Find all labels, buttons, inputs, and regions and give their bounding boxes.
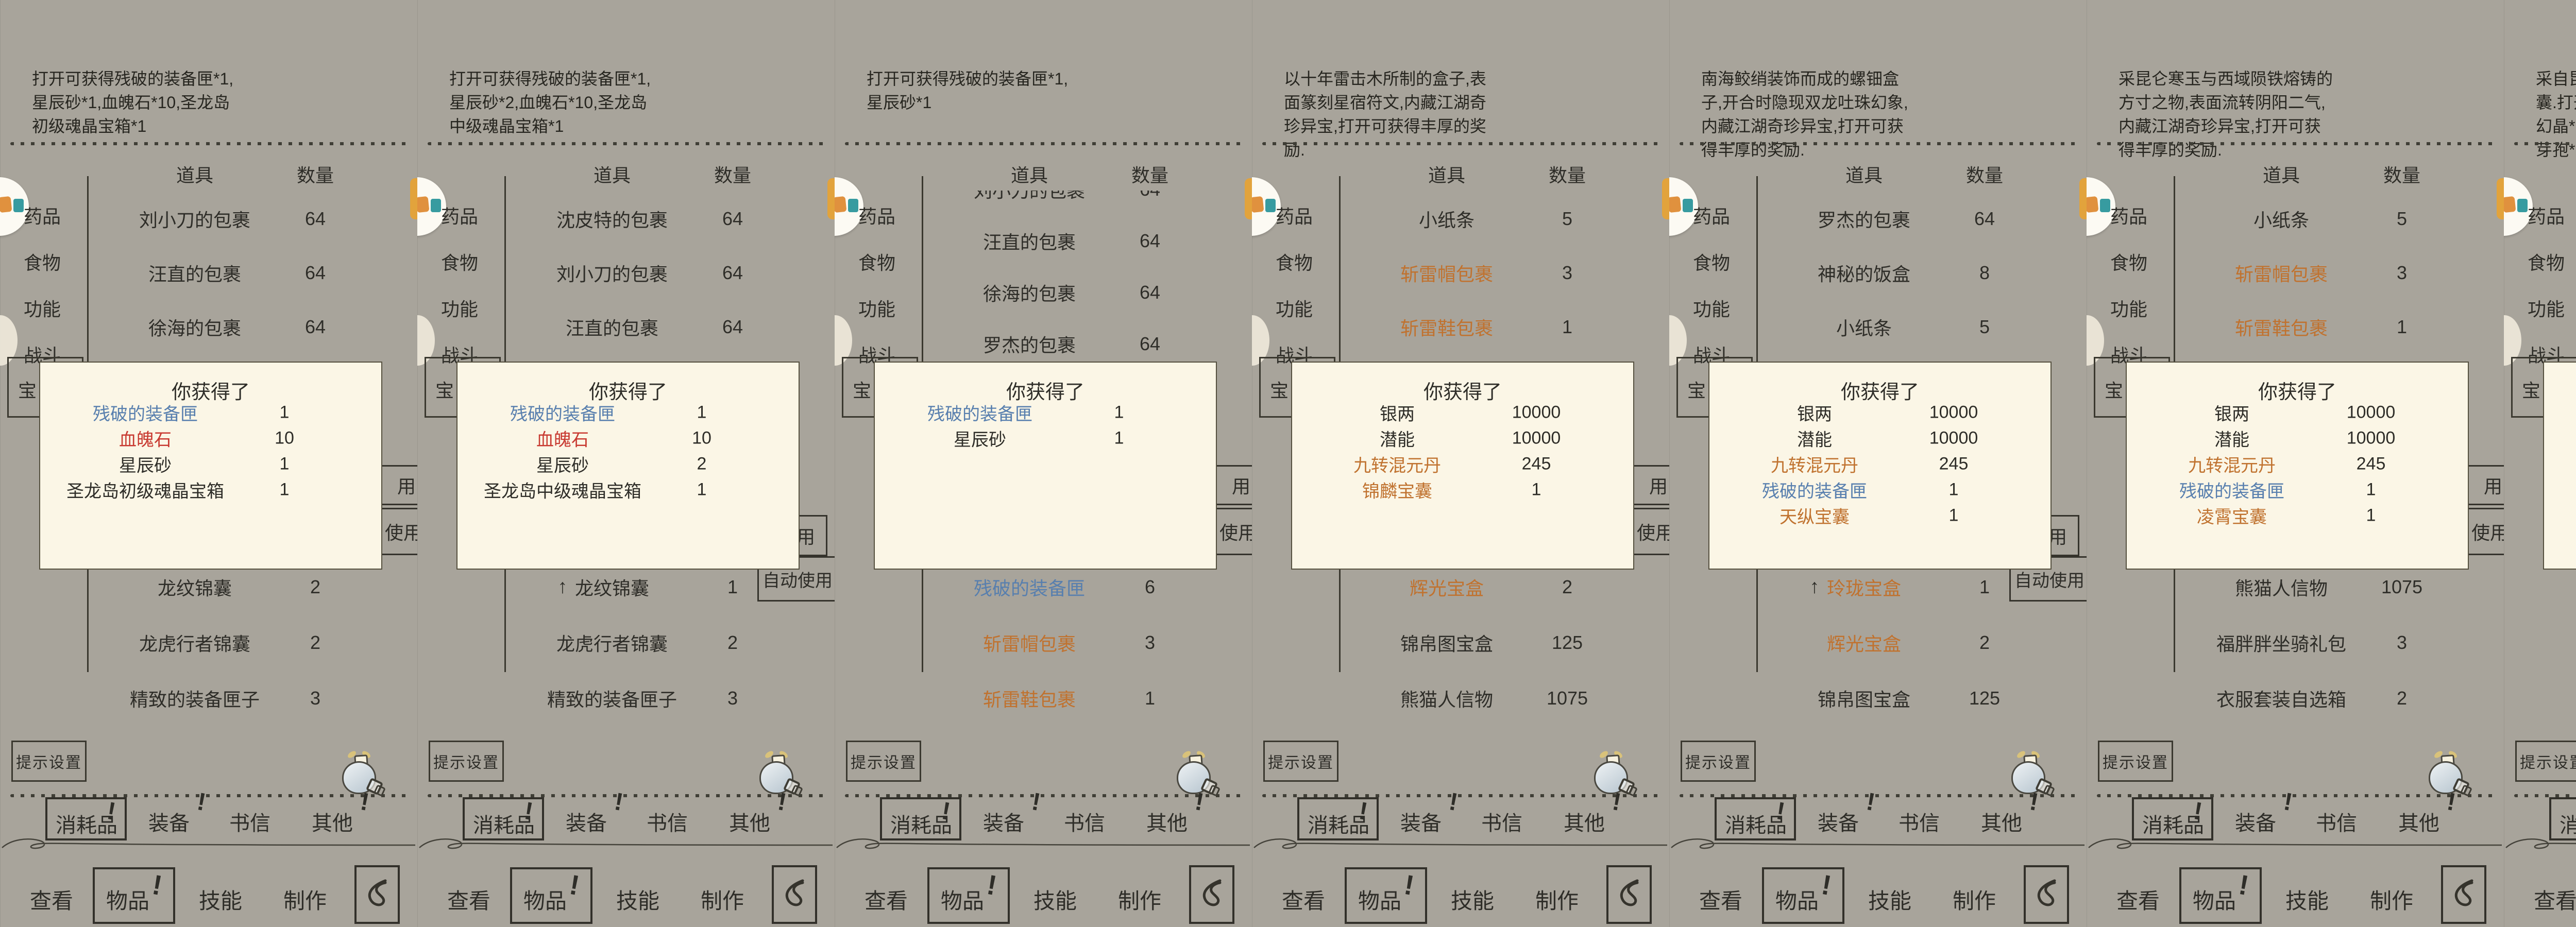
- auto-use-button-cutoff[interactable]: 使用: [1631, 508, 1669, 555]
- loot-count: 1: [280, 454, 290, 474]
- table-row[interactable]: 锦帛图宝盒125: [1757, 679, 2087, 718]
- nav-craft[interactable]: 制作: [1118, 884, 1161, 915]
- table-row[interactable]: 小纸条5: [1757, 307, 2087, 347]
- badge-teal-icon: [1265, 199, 1276, 212]
- column-header-count: 数量: [2383, 161, 2420, 187]
- item-count: 2: [310, 576, 320, 598]
- table-row[interactable]: 斩雷鞋包裹1: [2174, 307, 2504, 347]
- table-row[interactable]: 福胖胖坐骑礼包3: [2174, 623, 2504, 662]
- popup-loot-row: 圣龙岛初级魂晶宝箱1: [40, 477, 381, 503]
- column-header-item: 道具: [1845, 161, 1883, 187]
- sidebar-item-function[interactable]: 功能: [24, 295, 61, 321]
- use-button-label: 用: [2484, 472, 2502, 499]
- loot-count: 1: [1949, 480, 1959, 500]
- item-name: 斩雷帽包裹: [983, 629, 1076, 656]
- loot-count: 245: [1522, 454, 1551, 474]
- badge-orange-icon: [1669, 196, 1682, 213]
- item-name: 罗杰的包裹: [983, 331, 1076, 357]
- loot-popup: 你获得了 银两10000潜能10000九转混元丹245锦麟宝囊1: [1291, 362, 1634, 570]
- chest-description: 南海鲛绡装饰而成的螺钿盒子,开合时隐现双龙吐珠幻象,内藏江湖奇珍异宝,打开可获得…: [1701, 67, 1916, 162]
- loot-name: 星辰砂: [954, 426, 1006, 451]
- back-button[interactable]: [1189, 865, 1234, 924]
- loot-count: 1: [1949, 506, 1959, 526]
- auto-use-button-cutoff[interactable]: 使用: [1214, 508, 1252, 555]
- popup-loot-row: 银两10000: [2127, 400, 2468, 425]
- table-row[interactable]: 神秘的饭盒8: [1757, 253, 2087, 293]
- table-row[interactable]: 辉光宝盒2: [1340, 568, 1669, 607]
- tab-letters[interactable]: 书信: [1899, 806, 1940, 836]
- item-count: 5: [1979, 316, 1990, 338]
- nav-items-selected[interactable]: 物品!: [1345, 867, 1427, 924]
- item-name: 精致的装备匣子: [547, 685, 677, 712]
- badge-orange-icon: [2504, 196, 2516, 213]
- auto-use-button-label: 使用: [2471, 518, 2504, 545]
- sidebar-item-function[interactable]: 功能: [2110, 295, 2147, 321]
- popup-loot-row: 血魄石20: [2544, 425, 2576, 451]
- table-row[interactable]: 龙纹锦囊2: [88, 568, 417, 607]
- column-header-item: 道具: [2263, 161, 2300, 187]
- nav-view[interactable]: 查看: [2116, 884, 2160, 915]
- tip-settings-button[interactable]: 提示设置: [1681, 741, 1756, 782]
- table-row[interactable]: 小纸条5: [1340, 199, 1669, 238]
- tab-letters[interactable]: 书信: [647, 806, 688, 836]
- sidebar-item-medicine[interactable]: 药品: [441, 202, 478, 229]
- chest-description: 打开可获得残破的装备匣*1,星辰砂*1: [867, 67, 1081, 114]
- table-row[interactable]: 徐海的包裹64: [88, 307, 417, 347]
- table-row[interactable]: 汪直的包裹64: [88, 253, 417, 293]
- tab-others[interactable]: 其他: [2398, 806, 2439, 836]
- popup-loot-row: 血魄石10: [457, 425, 799, 451]
- item-count: 2: [2397, 688, 2407, 709]
- table-row[interactable]: 辉光宝盒2: [1757, 623, 2087, 662]
- tab-equipment[interactable]: 装备: [1818, 806, 1859, 836]
- loot-name: 星辰砂: [119, 452, 172, 477]
- divider-squiggle: [2087, 834, 2504, 853]
- loot-name: 残破的装备匣: [1762, 477, 1867, 503]
- badge-teal-icon: [13, 199, 24, 212]
- badge-orange-icon: [835, 196, 847, 213]
- loot-popup: 你获得了 残破的装备匣1血魄石10星辰砂2圣龙岛中级魂晶宝箱1: [456, 362, 800, 570]
- table-row[interactable]: 熊猫人信物1075: [1340, 679, 1669, 718]
- popup-loot-row: 九转混元丹245: [1709, 451, 2050, 477]
- item-count: 1: [1562, 316, 1572, 338]
- inventory-screen: 打开可获得残破的装备匣*1,星辰砂*2,血魄石*10,圣龙岛中级魂晶宝箱*1 道…: [417, 0, 835, 927]
- sidebar-item-function[interactable]: 功能: [858, 295, 895, 321]
- item-name: 辉光宝盒: [1410, 574, 1484, 600]
- item-count: 3: [2397, 632, 2407, 654]
- table-row[interactable]: 斩雷鞋包裹1: [1340, 307, 1669, 347]
- nav-skills[interactable]: 技能: [616, 884, 659, 915]
- item-count: 8: [1979, 262, 1990, 284]
- item-count: 1075: [1547, 688, 1588, 709]
- popup-loot-row: 星辰砂3: [2544, 451, 2576, 477]
- tip-settings-button[interactable]: 提示设置: [11, 741, 87, 782]
- tab-equipment[interactable]: 装备: [566, 806, 607, 836]
- loot-count: 10000: [1929, 403, 1978, 423]
- item-count: 3: [310, 688, 320, 709]
- item-count: 64: [722, 262, 743, 284]
- item-name: 龙虎行者锦囊: [556, 629, 668, 656]
- item-name: 沈皮特的包裹: [556, 205, 668, 232]
- nav-label: 物品: [1775, 884, 1819, 915]
- nav-skills[interactable]: 技能: [1033, 884, 1077, 915]
- nav-items-selected[interactable]: 物品!: [2179, 867, 2262, 924]
- table-row[interactable]: 斩雷鞋包裹1: [922, 679, 1252, 718]
- nav-skills[interactable]: 技能: [199, 884, 242, 915]
- tab-others[interactable]: 其他: [1981, 806, 2022, 836]
- use-button-label: 用: [1649, 472, 1668, 499]
- new-item-alert-icon: !: [1447, 787, 1460, 817]
- popup-loot-row: 九转混元丹245: [2127, 451, 2468, 477]
- divider-dotted-top: [845, 142, 1243, 145]
- column-header-count: 数量: [714, 161, 751, 187]
- column-header-item: 道具: [1428, 161, 1465, 187]
- divider-squiggle: [2504, 834, 2576, 853]
- loot-count: 1: [2366, 480, 2376, 500]
- tab-equipment[interactable]: 装备: [983, 806, 1024, 836]
- new-item-alert-icon: !: [1402, 869, 1416, 902]
- money-bag-icon[interactable]: [1174, 752, 1217, 795]
- sidebar-item-function[interactable]: 功能: [1276, 295, 1313, 321]
- tab-equipment[interactable]: 装备: [148, 806, 190, 836]
- back-arrow-icon: [774, 867, 815, 922]
- sidebar-item-medicine[interactable]: 药品: [1693, 202, 1730, 229]
- chest-description: 采昆仑寒玉与西域陨铁熔铸的方寸之物,表面流转阴阳二气,内藏江湖奇珍异宝,打开可获…: [2119, 67, 2333, 162]
- sidebar-item-medicine[interactable]: 药品: [858, 202, 895, 229]
- item-count: 1: [1145, 688, 1155, 709]
- popup-loot-row: 九转混元丹245: [1292, 451, 1633, 477]
- item-name: 小纸条: [1836, 314, 1892, 340]
- column-header-count: 数量: [1549, 161, 1586, 187]
- column-header-count: 数量: [1966, 161, 2003, 187]
- tab-letters[interactable]: 书信: [1481, 806, 1522, 836]
- popup-loot-row: 锦麟宝囊1: [1292, 477, 1633, 503]
- loot-count: 10000: [2347, 403, 2396, 423]
- item-name: 熊猫人信物: [2235, 574, 2328, 600]
- popup-loot-row: 潜能10000: [2127, 425, 2468, 451]
- chest-description: 采自昆仑绝顶冰髓雕琢的宝囊.打开可获得星辰砂*3,幽影幻晶*1,血魄石*20,西…: [2536, 67, 2576, 162]
- item-count: 2: [1979, 632, 1990, 654]
- table-row[interactable]: 刘小刀的包裹64: [505, 253, 835, 293]
- popup-loot-row: 残破的装备匣1: [875, 400, 1216, 425]
- table-row[interactable]: 罗杰的包裹64: [1757, 199, 2087, 238]
- item-name: 小纸条: [2253, 205, 2309, 232]
- sidebar-item-function[interactable]: 功能: [1693, 295, 1730, 321]
- item-name: 徐海的包裹: [148, 314, 241, 340]
- inventory-screen: 打开可获得残破的装备匣*1,星辰砂*1,血魄石*10,圣龙岛初级魂晶宝箱*1 道…: [0, 0, 417, 927]
- back-button[interactable]: [772, 865, 817, 924]
- table-row[interactable]: 徐海的包裹64: [922, 273, 1252, 312]
- item-name: 龙虎行者锦囊: [139, 629, 250, 656]
- table-row[interactable]: 龙虎行者锦囊2: [505, 623, 835, 662]
- nav-craft[interactable]: 制作: [1535, 884, 1579, 915]
- nav-view[interactable]: 查看: [1282, 884, 1325, 915]
- loot-name: 银两: [2214, 400, 2249, 425]
- item-count: 3: [1562, 262, 1572, 284]
- loot-name: 九转混元丹: [1771, 452, 1858, 477]
- table-row[interactable]: 汪直的包裹64: [505, 307, 835, 347]
- loot-name: 银两: [1797, 400, 1832, 425]
- new-item-alert-icon: !: [2281, 787, 2294, 817]
- column-header-item: 道具: [594, 161, 631, 187]
- back-button[interactable]: [2441, 865, 2486, 924]
- nav-items-selected[interactable]: 物品!: [1762, 867, 1844, 924]
- loot-count: 1: [697, 403, 707, 423]
- loot-popup: 你获得了 残破的装备匣1血魄石10星辰砂1圣龙岛初级魂晶宝箱1: [39, 362, 382, 570]
- loot-count: 1: [1114, 428, 1124, 449]
- nav-skills[interactable]: 技能: [1451, 884, 1494, 915]
- badge-orange-icon: [0, 196, 12, 213]
- inventory-screen: 采昆仑寒玉与西域陨铁熔铸的方寸之物,表面流转阴阳二气,内藏江湖奇珍异宝,打开可获…: [2087, 0, 2504, 927]
- nav-craft[interactable]: 制作: [2370, 884, 2413, 915]
- sidebar-item-food[interactable]: 食物: [24, 248, 61, 275]
- table-row[interactable]: 龙虎行者锦囊2: [88, 623, 417, 662]
- divider-dotted-top: [2097, 142, 2495, 145]
- loot-name: 凌霄宝囊: [2197, 503, 2267, 528]
- nav-skills[interactable]: 技能: [2285, 884, 2329, 915]
- money-bag-icon[interactable]: [339, 752, 382, 795]
- back-button[interactable]: [1606, 865, 1652, 924]
- chest-description: 打开可获得残破的装备匣*1,星辰砂*2,血魄石*10,圣龙岛中级魂晶宝箱*1: [449, 67, 664, 138]
- money-bag-icon[interactable]: [2426, 752, 2469, 795]
- loot-name: 九转混元丹: [1353, 452, 1441, 477]
- item-name: 福胖胖坐骑礼包: [2216, 629, 2346, 656]
- item-count: 2: [727, 632, 738, 654]
- item-name: 锦帛图宝盒: [1400, 629, 1493, 656]
- item-name: 斩雷帽包裹: [2235, 260, 2328, 286]
- sidebar-item-food[interactable]: 食物: [1693, 248, 1730, 275]
- item-name: 精致的装备匣子: [130, 685, 260, 712]
- sidebar-item-food[interactable]: 食物: [858, 248, 895, 275]
- tip-settings-button[interactable]: 提示设置: [846, 741, 921, 782]
- sidebar-item-food[interactable]: 食物: [2110, 248, 2147, 275]
- table-row[interactable]: 锦帛图宝盒125: [1340, 623, 1669, 662]
- chest-description: 以十年雷击木所制的盒子,表面篆刻星宿符文,内藏江湖奇珍异宝,打开可获得丰厚的奖励…: [1284, 67, 1498, 162]
- new-item-alert-icon: !: [150, 869, 164, 902]
- money-bag-icon[interactable]: [756, 752, 800, 795]
- badge-teal-icon: [1683, 199, 1693, 212]
- loot-count: 1: [280, 403, 290, 423]
- nav-label: 物品: [2193, 884, 2236, 915]
- divider-squiggle: [835, 834, 1252, 853]
- sidebar-item-food[interactable]: 食物: [1276, 248, 1313, 275]
- table-row[interactable]: 小纸条5: [2174, 199, 2504, 238]
- tip-settings-button[interactable]: 提示设置: [429, 741, 504, 782]
- loot-count: 10: [692, 428, 711, 449]
- item-count: 3: [727, 688, 738, 709]
- new-item-alert-icon: !: [985, 869, 999, 902]
- item-name: 残破的装备匣: [974, 574, 1085, 600]
- auto-use-button-cutoff[interactable]: 使用: [379, 508, 417, 555]
- loot-name: 残破的装备匣: [927, 400, 1032, 425]
- table-row[interactable]: 沈皮特的包裹64: [505, 199, 835, 238]
- use-button-label: 用: [1232, 472, 1250, 499]
- divider-dotted-top: [428, 142, 825, 145]
- item-count: 1: [1979, 576, 1990, 598]
- money-bag-icon[interactable]: [1591, 752, 1634, 795]
- back-arrow-icon: [357, 867, 398, 922]
- loot-count: 1: [1532, 480, 1541, 500]
- sidebar-item-medicine[interactable]: 药品: [2110, 202, 2147, 229]
- nav-view[interactable]: 查看: [1699, 884, 1742, 915]
- loot-name: 圣龙岛中级魂晶宝箱: [484, 477, 641, 503]
- table-row[interactable]: 斩雷帽包裹3: [922, 623, 1252, 662]
- tab-letters[interactable]: 书信: [1064, 806, 1105, 836]
- sidebar-item-food[interactable]: 食物: [2528, 248, 2565, 275]
- loot-name: 九转混元丹: [2188, 452, 2276, 477]
- item-count: 1: [727, 576, 738, 598]
- sidebar-item-food[interactable]: 食物: [441, 248, 478, 275]
- item-count: 2: [310, 632, 320, 654]
- tab-letters[interactable]: 书信: [2316, 806, 2357, 836]
- tab-others[interactable]: 其他: [1146, 806, 1188, 836]
- table-row[interactable]: 刘小刀的包裹64: [88, 199, 417, 238]
- tab-letters[interactable]: 书信: [229, 806, 270, 836]
- item-count: 3: [2397, 262, 2407, 284]
- item-count: 64: [305, 208, 326, 230]
- auto-use-button-label: 使用: [385, 518, 417, 545]
- loot-count: 245: [2357, 454, 2386, 474]
- loot-count: 10: [275, 428, 294, 449]
- badge-teal-icon: [2517, 199, 2528, 212]
- loot-count: 10000: [1512, 403, 1561, 423]
- loot-count: 1: [1114, 403, 1124, 423]
- nav-view[interactable]: 查看: [447, 884, 490, 915]
- loot-name: 潜能: [1380, 426, 1415, 451]
- item-name: 锦帛图宝盒: [1818, 685, 1910, 712]
- nav-view[interactable]: 查看: [30, 884, 73, 915]
- table-row[interactable]: 精致的装备匣子3: [505, 679, 835, 718]
- column-header-item: 道具: [1011, 161, 1048, 187]
- divider-squiggle: [1252, 834, 1669, 853]
- table-row[interactable]: 刘小刀的包裹64: [922, 170, 1252, 209]
- badge-teal-icon: [848, 199, 858, 212]
- inventory-screen: 打开可获得残破的装备匣*1,星辰砂*1 道具 数量 药品食物功能战斗 宝物 刘小…: [835, 0, 1252, 927]
- item-name: 龙纹锦囊: [158, 574, 232, 600]
- nav-items-selected[interactable]: 物品!: [510, 867, 592, 924]
- nav-view[interactable]: 查看: [865, 884, 908, 915]
- popup-loot-row: 残破的装备匣1: [40, 400, 381, 425]
- popup-loot-row: 银两10000: [1292, 400, 1633, 425]
- tab-others[interactable]: 其他: [312, 806, 353, 836]
- popup-loot-row: 潜能10000: [1292, 425, 1633, 451]
- tab-equipment[interactable]: 装备: [1400, 806, 1442, 836]
- nav-craft[interactable]: 制作: [701, 884, 744, 915]
- tab-others[interactable]: 其他: [729, 806, 770, 836]
- back-button[interactable]: [354, 865, 400, 924]
- badge-teal-icon: [2100, 199, 2110, 212]
- item-name: 刘小刀的包裹: [139, 205, 250, 232]
- selected-arrow-icon: ↑: [558, 576, 568, 598]
- badge-teal-icon: [431, 199, 441, 212]
- nav-craft[interactable]: 制作: [1953, 884, 1996, 915]
- item-count: 64: [1974, 208, 1995, 230]
- loot-name: 残破的装备匣: [93, 400, 198, 425]
- table-row[interactable]: 汪直的包裹64: [922, 221, 1252, 261]
- item-count: 125: [1969, 688, 2000, 709]
- item-count: 64: [1140, 282, 1160, 303]
- popup-loot-row: 圣龙岛中级魂晶宝箱1: [457, 477, 799, 503]
- item-name: 衣服套装自选箱: [2216, 685, 2346, 712]
- nav-skills[interactable]: 技能: [1868, 884, 1911, 915]
- popup-loot-row: 西域灵芝芽孢1: [2544, 400, 2576, 425]
- loot-name: 锦麟宝囊: [1362, 477, 1432, 503]
- item-count: 64: [1140, 230, 1160, 252]
- popup-loot-row: 潜能10000: [1709, 425, 2050, 451]
- badge-orange-icon: [1252, 196, 1264, 213]
- table-row[interactable]: 衣服套装自选箱2: [2174, 679, 2504, 718]
- loot-popup: 你获得了 西域灵芝芽孢1血魄石20星辰砂3幽影幻晶1幽冥令1: [2543, 362, 2576, 570]
- divider-dotted-top: [2514, 142, 2576, 145]
- nav-craft[interactable]: 制作: [283, 884, 327, 915]
- table-row[interactable]: 残破的装备匣6: [922, 568, 1252, 607]
- sidebar-item-medicine[interactable]: 药品: [2528, 202, 2565, 229]
- item-name: 汪直的包裹: [566, 314, 658, 340]
- table-row[interactable]: 斩雷帽包裹3: [2174, 253, 2504, 293]
- loot-name: 残破的装备匣: [2179, 477, 2284, 503]
- new-item-alert-icon: !: [612, 787, 625, 817]
- loot-name: 潜能: [1797, 426, 1832, 451]
- table-row[interactable]: 斩雷帽包裹3: [1340, 253, 1669, 293]
- nav-items-selected[interactable]: 物品!: [93, 867, 175, 924]
- nav-label: 物品: [523, 884, 567, 915]
- sidebar-item-medicine[interactable]: 药品: [1276, 202, 1313, 229]
- inventory-screen: 采自昆仑绝顶冰髓雕琢的宝囊.打开可获得星辰砂*3,幽影幻晶*1,血魄石*20,西…: [2504, 0, 2576, 927]
- item-name: 辉光宝盒: [1827, 629, 1901, 656]
- tip-settings-button[interactable]: 提示设置: [1263, 741, 1338, 782]
- tab-others[interactable]: 其他: [1564, 806, 1605, 836]
- tip-settings-button[interactable]: 提示设置: [2098, 741, 2173, 782]
- column-header-count: 数量: [297, 161, 334, 187]
- badge-orange-icon: [2087, 196, 2099, 213]
- table-row[interactable]: 精致的装备匣子3: [88, 679, 417, 718]
- nav-view[interactable]: 查看: [2534, 884, 2576, 915]
- item-name: 汪直的包裹: [148, 260, 241, 286]
- new-item-alert-icon: !: [1864, 787, 1877, 817]
- divider-dotted-top: [1680, 142, 2077, 145]
- back-button[interactable]: [2024, 865, 2069, 924]
- table-row[interactable]: 罗杰的包裹64: [922, 324, 1252, 364]
- popup-loot-row: 血魄石10: [40, 425, 381, 451]
- sidebar-item-function[interactable]: 功能: [2528, 295, 2565, 321]
- item-name: 徐海的包裹: [983, 279, 1076, 306]
- tab-equipment[interactable]: 装备: [2235, 806, 2276, 836]
- back-arrow-icon: [2026, 867, 2067, 922]
- loot-popup: 你获得了 残破的装备匣1星辰砂1: [874, 362, 1217, 570]
- tip-settings-button[interactable]: 提示设置: [2515, 741, 2576, 782]
- new-item-alert-icon: !: [1819, 869, 1834, 902]
- item-count: 6: [1145, 576, 1155, 598]
- divider-squiggle: [0, 834, 417, 853]
- popup-loot-row: 星辰砂1: [40, 451, 381, 477]
- loot-count: 2: [697, 454, 707, 474]
- loot-name: 星辰砂: [536, 452, 589, 477]
- loot-count: 1: [697, 480, 707, 500]
- loot-count: 1: [280, 480, 290, 500]
- item-name: 龙纹锦囊: [575, 574, 649, 600]
- item-count: 64: [722, 316, 743, 338]
- item-name: 罗杰的包裹: [1818, 205, 1910, 232]
- nav-items-selected[interactable]: 物品!: [927, 867, 1010, 924]
- loot-count: 10000: [1929, 428, 1978, 449]
- money-bag-icon[interactable]: [2008, 752, 2052, 795]
- auto-use-button-label: 使用: [1637, 518, 1669, 545]
- item-count: 3: [1145, 632, 1155, 654]
- sidebar-item-function[interactable]: 功能: [441, 295, 478, 321]
- auto-use-button-cutoff[interactable]: 使用: [2466, 508, 2504, 555]
- sidebar-item-medicine[interactable]: 药品: [24, 202, 61, 229]
- table-row[interactable]: 熊猫人信物1075: [2174, 568, 2504, 607]
